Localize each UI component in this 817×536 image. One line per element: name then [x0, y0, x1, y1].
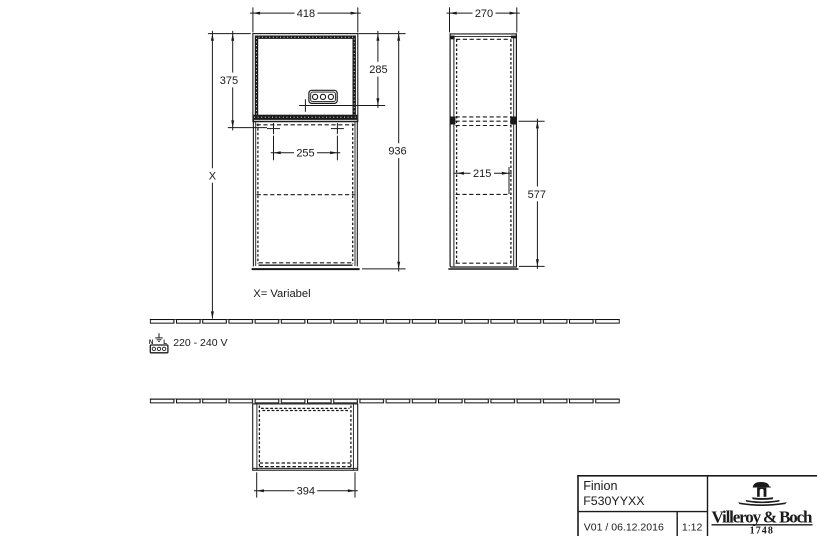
svg-text:X: X: [209, 171, 217, 183]
svg-text:X= Variabel: X= Variabel: [253, 288, 310, 300]
svg-text:220 - 240 V: 220 - 240 V: [173, 337, 227, 349]
svg-text:577: 577: [528, 189, 546, 201]
svg-text:F530YYXX: F530YYXX: [583, 494, 644, 508]
svg-text:255: 255: [296, 148, 314, 160]
svg-text:285: 285: [369, 64, 387, 76]
svg-text:N: N: [149, 339, 154, 346]
svg-text:270: 270: [475, 8, 493, 20]
svg-text:394: 394: [297, 486, 315, 498]
svg-text:Villeroy & Boch: Villeroy & Boch: [712, 508, 814, 527]
svg-text:Finion: Finion: [583, 479, 617, 493]
svg-text:L: L: [163, 339, 167, 346]
svg-text:1:12: 1:12: [682, 522, 703, 534]
svg-text:418: 418: [297, 8, 315, 20]
svg-text:215: 215: [473, 168, 491, 180]
svg-text:375: 375: [220, 75, 238, 87]
svg-text:936: 936: [388, 146, 406, 158]
svg-text:1748: 1748: [750, 525, 774, 536]
svg-text:V01 / 06.12.2016: V01 / 06.12.2016: [584, 522, 664, 534]
